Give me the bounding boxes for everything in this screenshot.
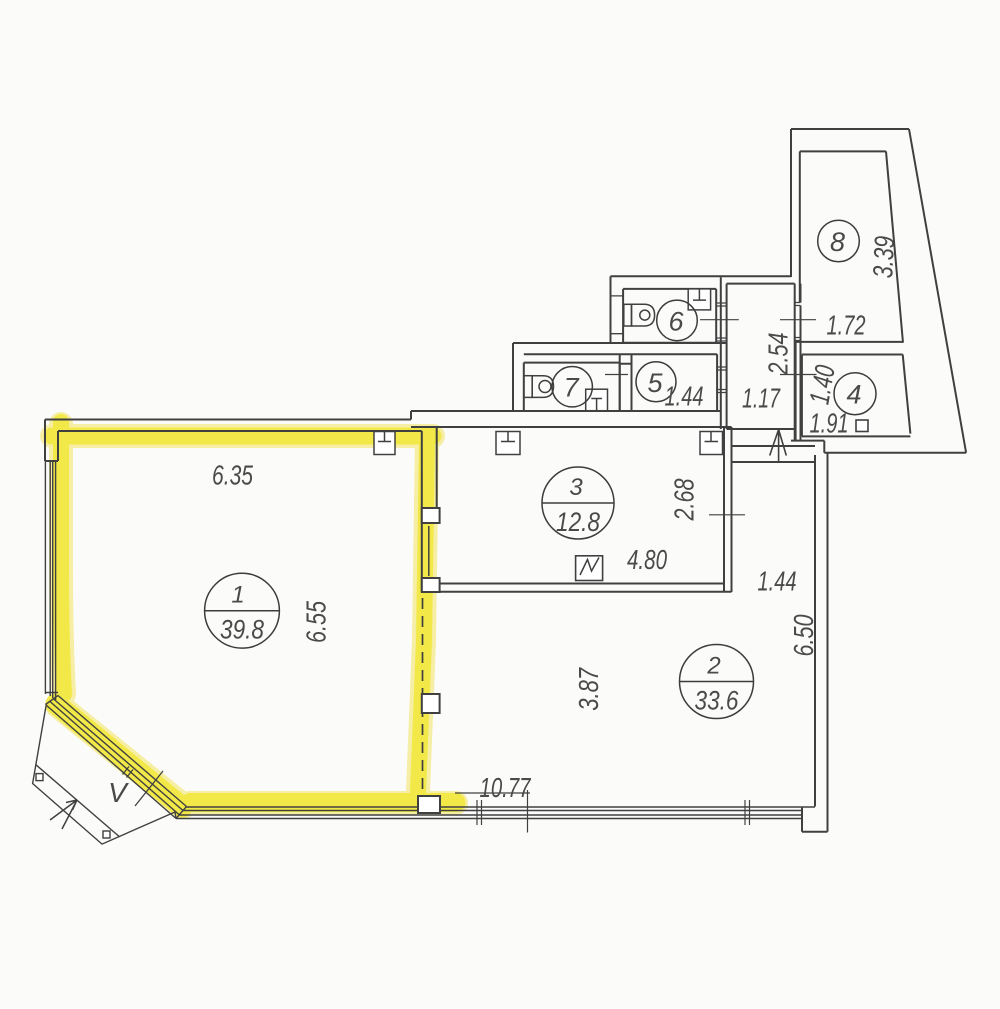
svg-text:1: 1 (231, 582, 244, 609)
svg-text:5: 5 (647, 368, 663, 398)
svg-text:12.8: 12.8 (556, 507, 600, 537)
svg-text:6.55: 6.55 (301, 601, 332, 643)
svg-text:6.50: 6.50 (788, 614, 819, 656)
svg-text:1.44: 1.44 (758, 566, 797, 597)
svg-text:3.39: 3.39 (867, 235, 900, 279)
svg-text:6: 6 (668, 306, 684, 336)
svg-text:4.80: 4.80 (627, 544, 667, 575)
svg-text:1.91: 1.91 (810, 408, 849, 439)
svg-text:8: 8 (830, 227, 845, 257)
svg-text:7: 7 (564, 373, 580, 403)
svg-text:10.77: 10.77 (480, 772, 532, 803)
svg-text:4: 4 (846, 380, 861, 410)
svg-text:1.17: 1.17 (742, 383, 781, 414)
svg-text:3: 3 (569, 474, 583, 501)
svg-text:3.87: 3.87 (573, 667, 604, 711)
svg-text:39.8: 39.8 (220, 615, 264, 645)
svg-text:V: V (108, 777, 129, 808)
svg-text:1.44: 1.44 (665, 381, 704, 412)
svg-text:33.6: 33.6 (695, 685, 740, 715)
svg-text:2.54: 2.54 (763, 333, 794, 376)
svg-text:2.68: 2.68 (669, 478, 700, 521)
svg-text:2: 2 (706, 652, 720, 679)
svg-text:1.72: 1.72 (827, 310, 866, 341)
svg-text:6.35: 6.35 (212, 460, 253, 491)
